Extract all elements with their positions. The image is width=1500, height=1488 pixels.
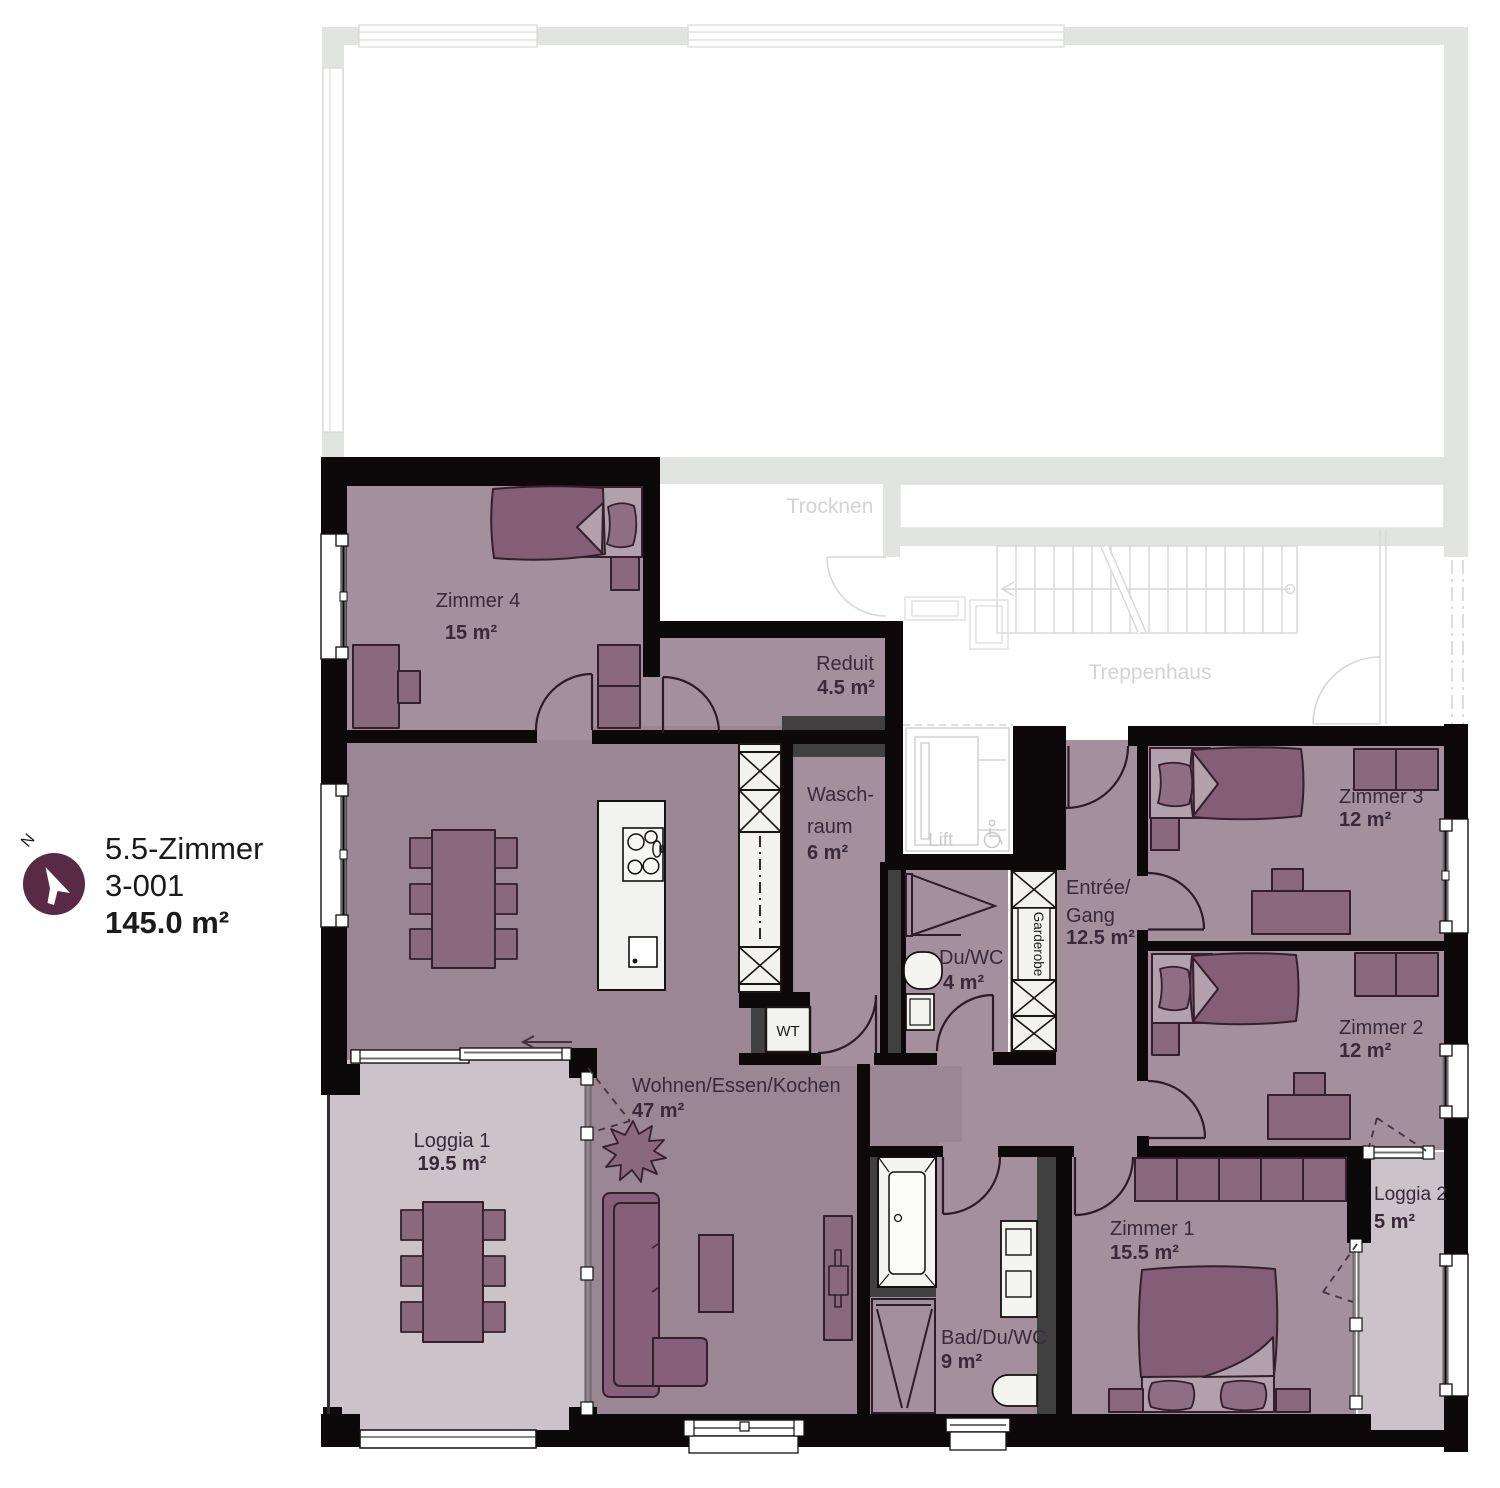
svg-text:Reduit: Reduit [816,653,874,675]
svg-text:Wasch-: Wasch- [807,784,874,806]
svg-text:Zimmer 3: Zimmer 3 [1339,786,1423,808]
svg-text:Zimmer 4: Zimmer 4 [436,590,520,612]
svg-text:5 m²: 5 m² [1374,1211,1415,1233]
svg-text:Bad/Du/WC: Bad/Du/WC [941,1327,1047,1349]
svg-text:12 m²: 12 m² [1339,809,1392,831]
svg-text:Zimmer 1: Zimmer 1 [1110,1218,1194,1240]
svg-text:WT: WT [776,1023,799,1040]
svg-text:Lift: Lift [928,830,954,851]
svg-text:4 m²: 4 m² [943,972,984,994]
svg-text:Wohnen/Essen/Kochen: Wohnen/Essen/Kochen [632,1075,841,1097]
svg-text:19.5 m²: 19.5 m² [418,1153,487,1175]
svg-text:6 m²: 6 m² [807,842,848,864]
svg-text:Du/WC: Du/WC [939,947,1003,969]
svg-text:Trocknen: Trocknen [787,495,874,518]
svg-text:Entrée/: Entrée/ [1066,877,1131,899]
svg-text:9 m²: 9 m² [941,1351,982,1373]
svg-text:Garderobe: Garderobe [1031,912,1046,977]
svg-text:12.5 m²: 12.5 m² [1066,927,1135,949]
svg-text:Treppenhaus: Treppenhaus [1089,661,1212,684]
svg-text:Zimmer 2: Zimmer 2 [1339,1017,1423,1039]
svg-text:12 m²: 12 m² [1339,1040,1392,1062]
svg-text:3-001: 3-001 [105,868,184,903]
svg-text:4.5 m²: 4.5 m² [817,677,875,699]
svg-text:Loggia 1: Loggia 1 [414,1130,491,1152]
svg-text:145.0 m²: 145.0 m² [105,905,229,940]
svg-text:47 m²: 47 m² [632,1100,685,1122]
svg-text:5.5-Zimmer: 5.5-Zimmer [105,831,263,866]
svg-text:Gang: Gang [1066,905,1115,927]
svg-text:15 m²: 15 m² [445,622,498,644]
svg-text:15.5 m²: 15.5 m² [1110,1242,1179,1264]
svg-text:Loggia 2: Loggia 2 [1374,1184,1447,1205]
svg-text:raum: raum [807,816,853,838]
